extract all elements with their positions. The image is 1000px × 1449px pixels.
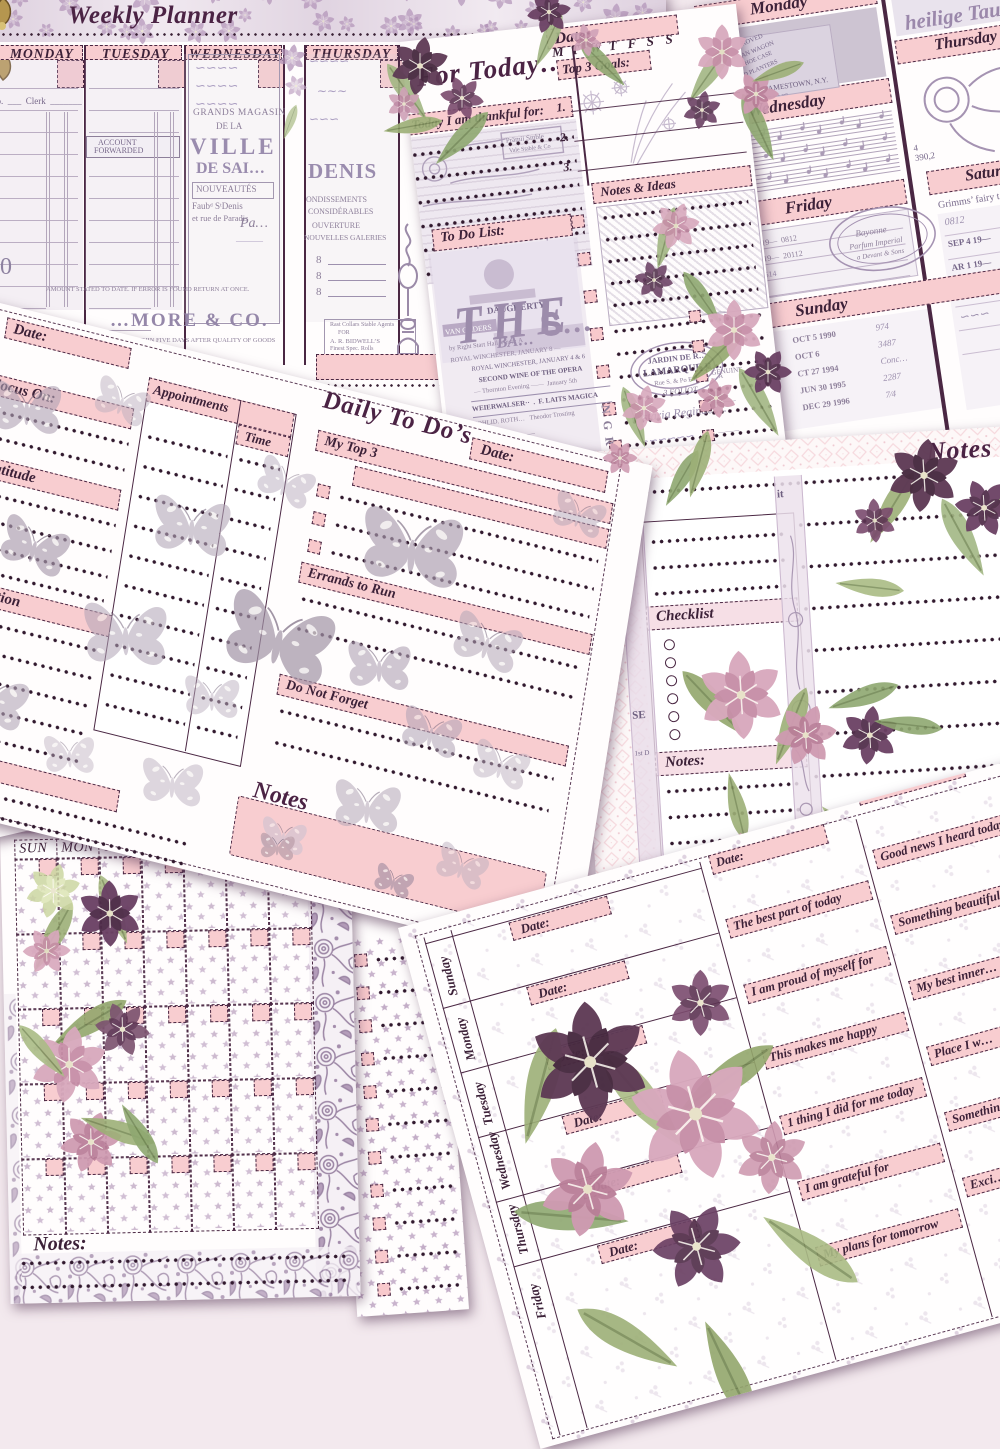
svg-text:Bayonne: Bayonne bbox=[855, 224, 888, 239]
svg-text:Wistaria Reginae …: Wistaria Reginae … bbox=[629, 400, 727, 425]
svg-text:3 FOLIOT: 3 FOLIOT bbox=[662, 385, 698, 398]
